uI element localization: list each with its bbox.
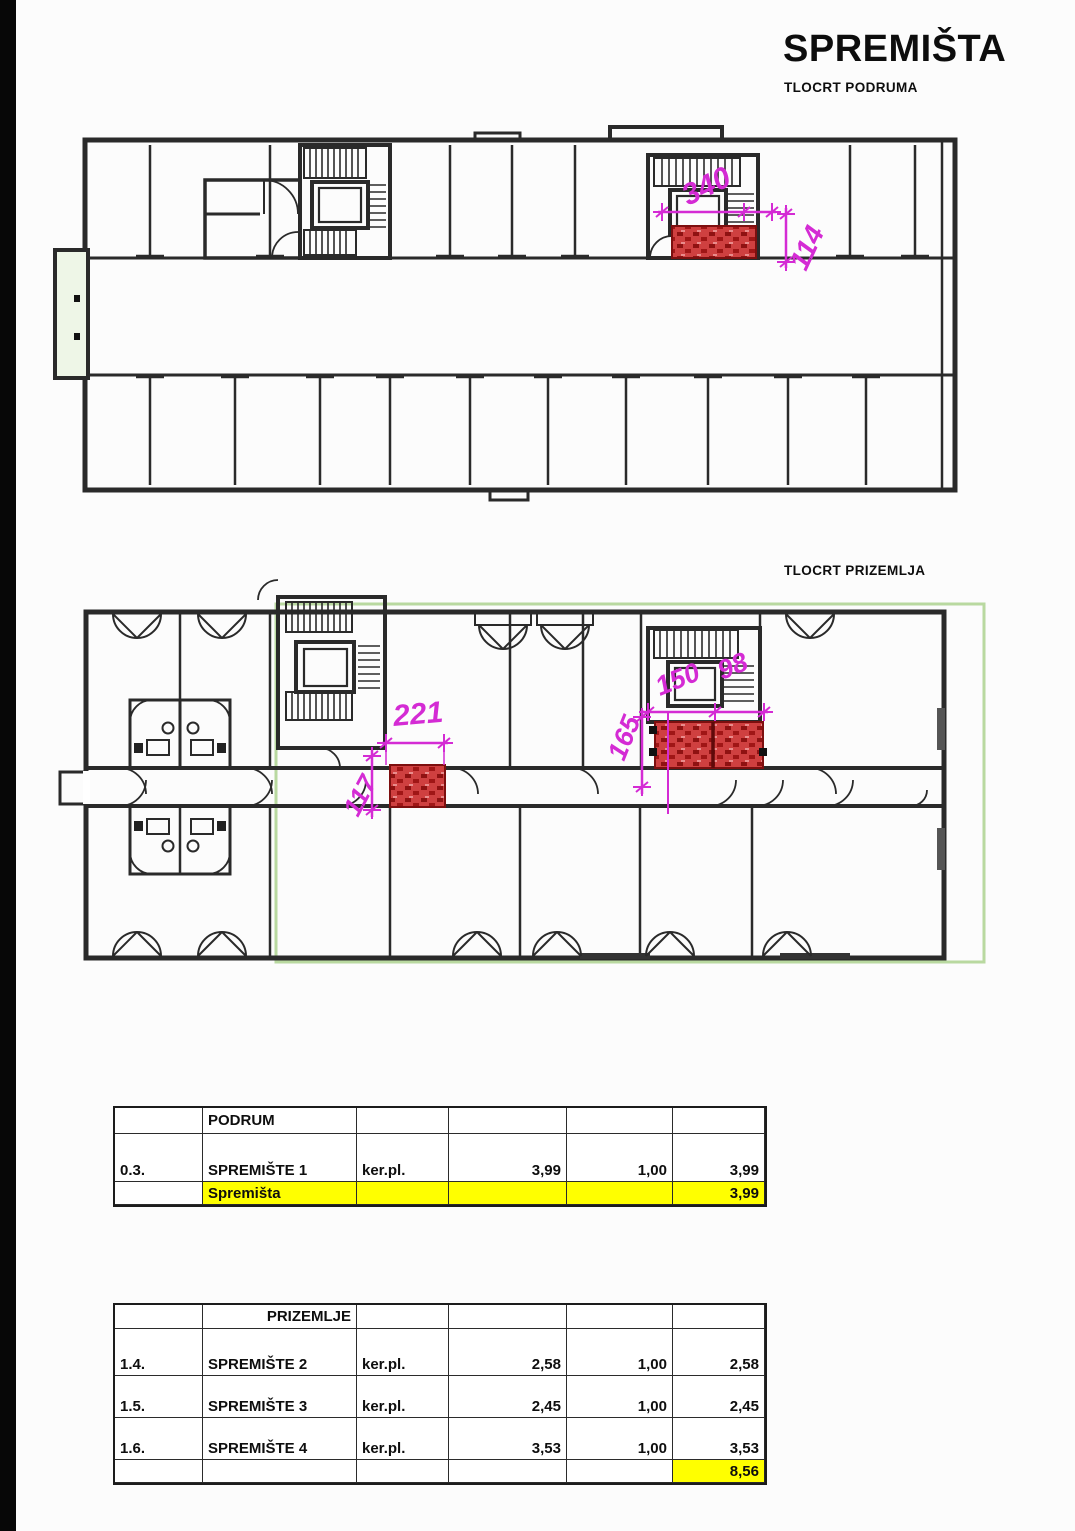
floor-finish: ker.pl. — [357, 1376, 449, 1418]
storage-highlight-spremiste-3-4 — [649, 722, 767, 768]
floor-finish: ker.pl. — [357, 1329, 449, 1376]
total-value: 2,45 — [673, 1376, 765, 1418]
table-cell — [449, 1182, 567, 1205]
table-cell — [567, 1460, 673, 1483]
page-title: SPREMIŠTA — [783, 28, 1006, 71]
scanned-floor-plan-page: SPREMIŠTA TLOCRT PODRUMA TLOCRT PRIZEMLJ… — [0, 0, 1075, 1531]
table-cell — [449, 1108, 567, 1134]
prizemlje-area-table: PRIZEMLJE 1.4. SPREMIŠTE 2 ker.pl. 2,58 … — [113, 1303, 767, 1485]
room-name: SPREMIŠTE 4 — [203, 1418, 357, 1460]
table-cell — [115, 1460, 203, 1483]
area-value: 3,99 — [449, 1134, 567, 1182]
ground-plan-label: TLOCRT PRIZEMLJA — [784, 563, 925, 578]
table-cell — [357, 1108, 449, 1134]
table-cell — [357, 1460, 449, 1483]
row-id: 0.3. — [115, 1134, 203, 1182]
area-value: 2,45 — [449, 1376, 567, 1418]
podrum-area-table: PODRUM 0.3. SPREMIŠTE 1 ker.pl. 3,99 1,0… — [113, 1106, 767, 1207]
table-cell — [203, 1460, 357, 1483]
table-cell — [115, 1108, 203, 1134]
basement-walls — [55, 127, 955, 500]
basement-floor-plan: 340 114 — [20, 110, 1020, 520]
row-id: 1.4. — [115, 1329, 203, 1376]
coefficient-value: 1,00 — [567, 1329, 673, 1376]
table-cell — [567, 1305, 673, 1329]
basement-plan-label: TLOCRT PODRUMA — [784, 80, 918, 95]
storage-highlight-spremiste-2 — [390, 765, 445, 807]
ground-floor-plan: 221 117 165 150 98 — [20, 580, 1020, 980]
table-cell — [115, 1305, 203, 1329]
dim-label-221: 221 — [391, 696, 445, 733]
table-cell — [567, 1182, 673, 1205]
coefficient-value: 1,00 — [567, 1134, 673, 1182]
table-cell — [357, 1305, 449, 1329]
summary-total: 8,56 — [673, 1460, 765, 1483]
stair-core — [258, 580, 385, 768]
parking-stall-lines-bottom — [136, 375, 880, 485]
room-name: SPREMIŠTE 3 — [203, 1376, 357, 1418]
dim-label-114: 114 — [783, 221, 830, 275]
table-cell — [449, 1305, 567, 1329]
summary-label: Spremišta — [203, 1182, 357, 1205]
row-id: 1.6. — [115, 1418, 203, 1460]
floor-finish: ker.pl. — [357, 1418, 449, 1460]
storage-highlight-spremiste-1 — [672, 226, 756, 258]
table-cell — [115, 1182, 203, 1205]
podrum-group-header: PODRUM — [203, 1108, 357, 1134]
basement-room — [205, 180, 300, 258]
prizemlje-group-header: PRIZEMLJE — [203, 1305, 357, 1329]
coefficient-value: 1,00 — [567, 1376, 673, 1418]
room-name: SPREMIŠTE 1 — [203, 1134, 357, 1182]
parcel-outline-green — [276, 604, 984, 962]
area-value: 2,58 — [449, 1329, 567, 1376]
scan-edge-bar — [0, 0, 16, 1531]
row-id: 1.5. — [115, 1376, 203, 1418]
coefficient-value: 1,00 — [567, 1418, 673, 1460]
bathroom-cluster-top — [130, 700, 230, 768]
stair-core — [300, 145, 390, 258]
table-cell — [357, 1182, 449, 1205]
table-cell — [673, 1305, 765, 1329]
total-value: 3,53 — [673, 1418, 765, 1460]
dim-label-117: 117 — [337, 769, 384, 821]
summary-total: 3,99 — [673, 1182, 765, 1205]
corridor-door-swings — [120, 768, 927, 806]
table-cell — [673, 1108, 765, 1134]
room-name: SPREMIŠTE 2 — [203, 1329, 357, 1376]
floor-finish: ker.pl. — [357, 1134, 449, 1182]
table-cell — [567, 1108, 673, 1134]
area-value: 3,53 — [449, 1418, 567, 1460]
total-value: 2,58 — [673, 1329, 765, 1376]
total-value: 3,99 — [673, 1134, 765, 1182]
table-cell — [449, 1460, 567, 1483]
